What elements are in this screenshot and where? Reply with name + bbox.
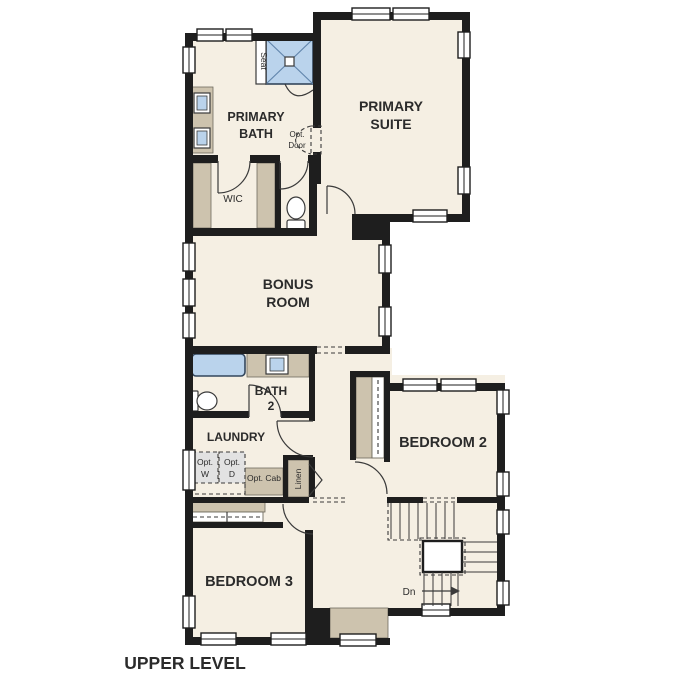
opt-door-label-1: Opt. (289, 130, 304, 139)
window-symbol (379, 245, 391, 273)
bonus-room-label-2: ROOM (266, 294, 310, 310)
opt-cab-label: Opt. Cab (247, 473, 281, 483)
opt-washer-label-2: W (201, 469, 209, 479)
opt-door-label-2: Door (288, 141, 306, 150)
window-symbol (422, 604, 450, 616)
wall-bonus-bottom-left (185, 346, 317, 354)
wall-hall-left-lower (309, 457, 315, 497)
primary-toilet-bowl (287, 197, 305, 219)
primary-sink1-basin (197, 96, 207, 110)
window-symbol (183, 243, 195, 271)
bath2-sink-basin (270, 358, 284, 371)
wall-wic-top-b (250, 155, 280, 163)
stair-hall-floor (307, 497, 505, 616)
window-symbol (226, 29, 252, 41)
wall-bath2-laundry-b (281, 411, 313, 418)
window-symbol (403, 379, 437, 391)
window-symbol (458, 32, 470, 58)
primary-bath-label-1: PRIMARY (227, 110, 285, 124)
window-symbol (352, 8, 390, 20)
window-symbol (271, 633, 306, 645)
bath2-label-1: BATH (255, 384, 287, 398)
primary-sink2-basin (197, 131, 207, 145)
wall-bedroom3-top (189, 522, 283, 528)
laundry-label: LAUNDRY (207, 430, 265, 444)
window-symbol (201, 633, 236, 645)
window-symbol (379, 307, 391, 336)
wall-bonus-bottom-right (345, 346, 390, 354)
window-symbol (183, 313, 195, 338)
wall-corner-suite-bonus (352, 214, 390, 240)
seat-label: Seat (259, 52, 269, 70)
bedroom2-label: BEDROOM 2 (399, 435, 487, 451)
window-symbol (497, 472, 509, 496)
wall-toilet-right (309, 163, 317, 230)
window-symbol (183, 279, 195, 306)
window-symbol (458, 167, 470, 194)
window-symbol (183, 450, 195, 490)
window-symbol (183, 47, 195, 73)
bath2-label-2: 2 (268, 399, 275, 413)
window-symbol (497, 581, 509, 605)
shower-drain (285, 57, 294, 66)
window-symbol (497, 390, 509, 414)
wall-patch-left-block (305, 608, 330, 645)
wall-wic-top-c (308, 155, 317, 163)
window-symbol (393, 8, 429, 20)
wall-suite-top (313, 12, 470, 20)
window-symbol (413, 210, 447, 222)
wall-bedroom2-bottom-a (387, 497, 423, 503)
primary-suite-label-2: SUITE (370, 116, 411, 132)
bedroom3-label: BEDROOM 3 (205, 574, 293, 590)
opt-dryer-label-1: Opt. (224, 457, 240, 467)
wall-wic-top-a (185, 155, 218, 163)
window-symbol (497, 510, 509, 534)
plan-title: UPPER LEVEL (124, 653, 246, 673)
primary-suite-label-1: PRIMARY (359, 98, 424, 114)
floorplan-canvas: PRIMARY BATH PRIMARY SUITE BONUS ROOM BA… (0, 0, 687, 687)
wall-hall-left-upper (309, 354, 315, 421)
wall-closet-left (350, 371, 356, 460)
wall-suite-left-upper (313, 12, 321, 128)
window-symbol (197, 29, 223, 41)
wic-shelf-left (193, 163, 211, 228)
primary-bath-label-2: BATH (239, 127, 273, 141)
bedroom2-closet-shelf (356, 377, 372, 458)
window-symbol (183, 596, 195, 628)
bath2-tub (192, 354, 245, 376)
stair-landing (423, 541, 462, 572)
wall-wic-bottom (185, 228, 317, 236)
wic-shelf-right (257, 163, 275, 228)
wall-bath2-laundry-a (189, 411, 249, 418)
wall-exterior-left (185, 33, 193, 645)
down-label: Dn (403, 587, 416, 598)
bonus-room-label-1: BONUS (263, 276, 314, 292)
wall-linen-left (283, 455, 288, 497)
bath2-toilet-bowl (197, 392, 217, 410)
opt-dryer-label-2: D (229, 469, 235, 479)
wall-bedroom2-bottom-b (457, 497, 505, 503)
floorplan-drawing: PRIMARY BATH PRIMARY SUITE BONUS ROOM BA… (0, 0, 687, 687)
wall-laundry-bottom (189, 497, 309, 503)
wic-label: WIC (223, 194, 242, 205)
opt-washer-label-1: Opt. (197, 457, 213, 467)
window-symbol (340, 634, 376, 646)
window-symbol (441, 379, 476, 391)
linen-label: Linen (293, 468, 303, 489)
